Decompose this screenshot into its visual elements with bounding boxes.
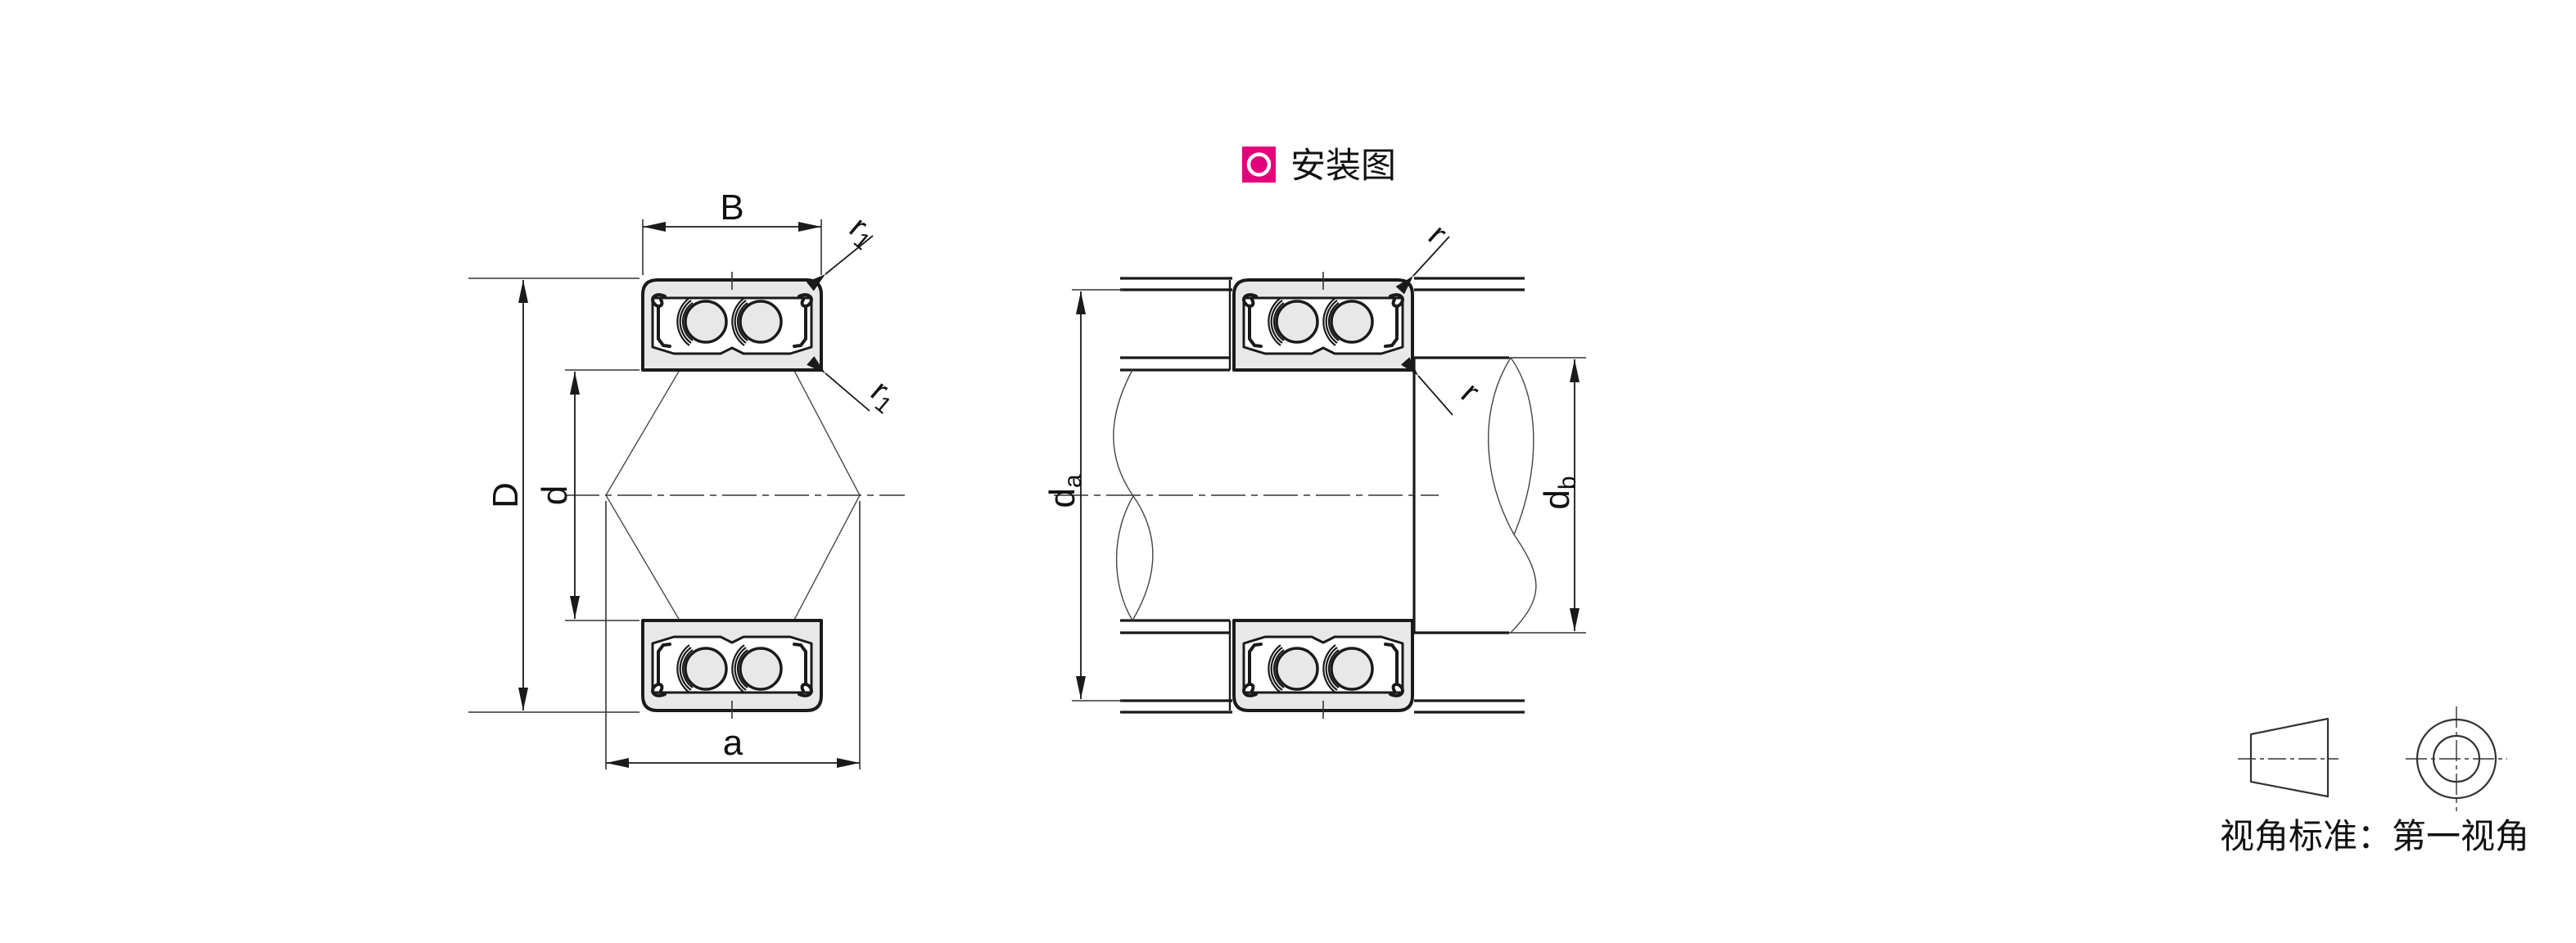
r-label: r [1421, 218, 1453, 252]
radius-r1-outer: r1 [825, 210, 884, 274]
dim-label-d: d [535, 485, 575, 505]
bearing-section-bottom [1234, 620, 1412, 719]
install-diagram-title: 安装图 [1290, 147, 1396, 186]
projection-symbol: 视角标准：第一视角 [2220, 706, 2529, 855]
dim-label-db: db [1537, 476, 1581, 509]
bearing-section-top [643, 272, 821, 370]
dimension-db: db [1509, 358, 1586, 633]
radius-r1-inner: r1 [825, 373, 906, 418]
radius-r-outer: r [1413, 218, 1453, 276]
installation-diagram: da db r r [1042, 218, 1586, 719]
bearing-section-top [1234, 272, 1412, 370]
dimension-B: B [643, 187, 821, 275]
r1-label: r1 [862, 373, 906, 418]
view-standard-caption: 视角标准：第一视角 [2220, 817, 2529, 855]
bearing-cross-section-diagram: B D d a r1 [468, 187, 906, 769]
radius-r-inner: r [1418, 376, 1486, 415]
install-diagram-header: 安装图 [1242, 147, 1396, 186]
cone-frustum-icon [2251, 719, 2328, 796]
circle-crosshair-lines [2406, 706, 2507, 811]
bearing-section-bottom [643, 620, 821, 719]
catalog-drawing-page: B D d a r1 [0, 0, 2576, 943]
dim-label-B: B [720, 187, 743, 228]
dim-label-a: a [723, 723, 743, 763]
technical-drawing-canvas: B D d a r1 [0, 0, 2576, 943]
dim-label-D: D [486, 482, 526, 508]
dim-label-da: da [1042, 474, 1087, 508]
r1-label: r1 [841, 210, 884, 255]
r-label: r [1454, 376, 1486, 410]
